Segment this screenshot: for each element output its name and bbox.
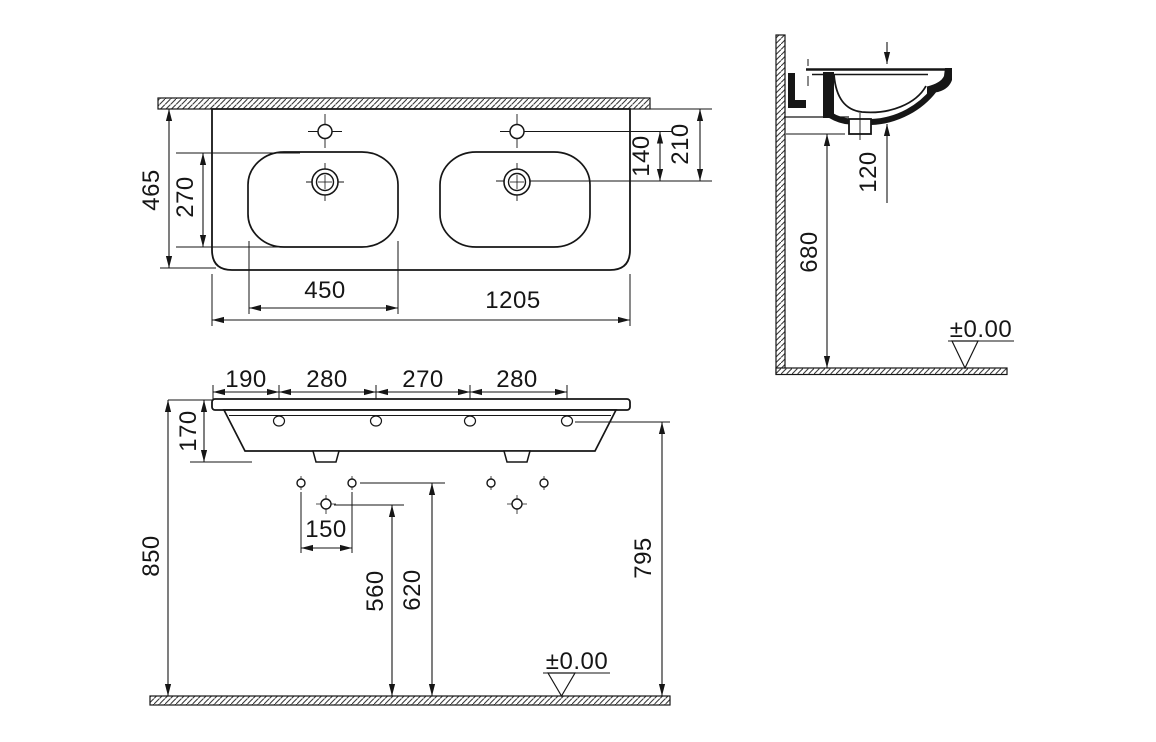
- side-datum-symbol: [948, 341, 1014, 368]
- dim-label-front-150: 150: [305, 518, 347, 542]
- technical-drawing-sheet: 465 270 450 1205 140 210 120 680 ±0.00 1…: [0, 0, 1156, 742]
- front-fixing-circle-r1: [487, 479, 495, 487]
- dim-label-plan-465: 465: [140, 169, 164, 211]
- dim-label-front-850: 850: [140, 535, 164, 577]
- dim-label-front-560: 560: [364, 570, 388, 612]
- dim-label-front-280a: 280: [306, 368, 348, 392]
- dim-label-front-795: 795: [632, 537, 656, 579]
- front-right-drain-boss: [504, 451, 530, 462]
- front-floor-hatch: [150, 696, 670, 705]
- front-drain-circle-right: [512, 499, 522, 509]
- dim-label-front-170: 170: [177, 410, 201, 452]
- plan-view: [158, 98, 712, 326]
- dim-label-side-680: 680: [798, 231, 822, 273]
- side-basin-section: [784, 59, 952, 140]
- plan-left-faucet-hole: [318, 125, 332, 139]
- dim-label-plan-270: 270: [174, 176, 198, 218]
- front-rim-slab: [212, 399, 630, 410]
- dim-label-plan-210: 210: [669, 123, 693, 165]
- plan-right-faucet-hole: [510, 125, 524, 139]
- front-fixing-hole-2: [371, 416, 382, 426]
- dim-label-side-120: 120: [857, 151, 881, 193]
- dim-label-front-280b: 280: [496, 368, 538, 392]
- dim-label-front-620: 620: [401, 569, 425, 611]
- dim-label-plan-1205: 1205: [485, 289, 540, 313]
- dim-label-front-270: 270: [402, 368, 444, 392]
- plan-right-bowl: [440, 152, 590, 247]
- dim-label-plan-450: 450: [304, 279, 346, 303]
- front-datum-symbol: [543, 673, 610, 696]
- front-fixing-hole-3: [465, 416, 476, 426]
- front-fixing-circle-l2: [348, 479, 356, 487]
- plan-wall-hatch: [158, 98, 650, 109]
- datum-label-front: ±0.00: [546, 650, 608, 674]
- front-basin-body: [224, 410, 616, 451]
- front-fixing-hole-4: [562, 416, 573, 426]
- dim-label-plan-140: 140: [630, 135, 654, 177]
- plan-left-bowl: [248, 152, 398, 247]
- drawing-canvas: [0, 0, 1156, 742]
- front-fixing-circle-r2: [540, 479, 548, 487]
- front-drain-circle-left: [321, 499, 331, 509]
- side-wall-hatch: [776, 35, 785, 374]
- dim-label-front-190: 190: [225, 368, 267, 392]
- side-floor-hatch: [776, 368, 1007, 375]
- front-fixing-hole-1: [274, 416, 285, 426]
- front-left-drain-boss: [313, 451, 339, 462]
- front-fixing-circle-l1: [297, 479, 305, 487]
- datum-label-side: ±0.00: [950, 318, 1012, 342]
